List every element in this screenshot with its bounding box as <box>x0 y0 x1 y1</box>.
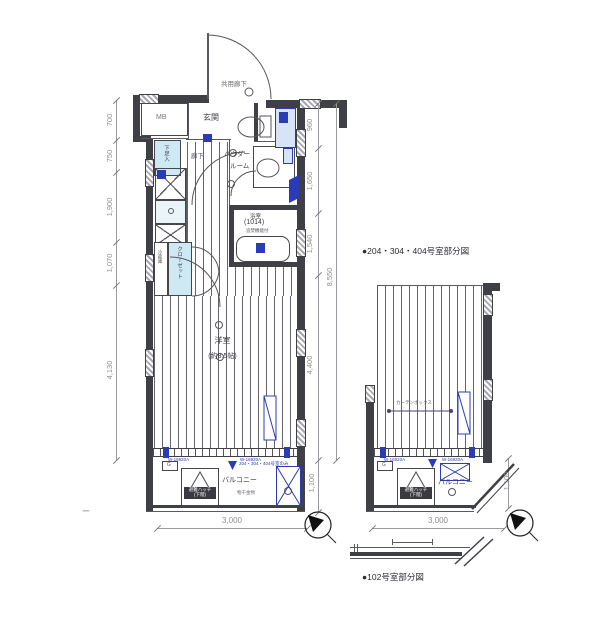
window-note-left: W-16920A <box>384 457 405 462</box>
entry-step-marker <box>203 134 212 142</box>
kitchen-sink <box>155 200 186 224</box>
floor-plan-canvas: MB 玄関 共用廊下 下足入 廊下 冷蔵庫 クローゼット パウダー ルーム 浴室… <box>0 0 613 628</box>
dim-label-3000: 3,000 <box>408 516 468 525</box>
dim-label-3000: 3,000 <box>202 516 262 525</box>
detail-break-slash <box>455 537 484 564</box>
wall-hatch <box>484 295 492 315</box>
escape-hatch-label-line2: (下階) <box>400 492 432 497</box>
wall-hatch <box>146 160 153 186</box>
dim-tick <box>505 505 512 512</box>
chamfer-wall <box>477 468 519 513</box>
detail-bracket-tick <box>392 539 393 545</box>
wall-hatch <box>366 386 374 402</box>
closet-label: クローゼット <box>175 246 183 279</box>
dim-label-4130: 4,130 <box>105 352 115 388</box>
wall-segment <box>146 138 153 465</box>
dim-tick <box>113 457 120 464</box>
partition-line <box>377 285 483 286</box>
dim-label-1070: 1,070 <box>105 245 115 281</box>
partition-line <box>141 138 188 139</box>
detail-wall-band <box>350 552 462 556</box>
gas-outlet-label: G <box>382 462 386 468</box>
wall-hatch <box>297 420 305 446</box>
detail-bracket-tick <box>432 539 433 545</box>
fixture-circle <box>449 489 456 496</box>
wall-segment <box>229 262 297 267</box>
dim-line-right-inner <box>318 103 319 460</box>
mb-label: MB <box>156 114 167 121</box>
dim-label-8550: 8,550 <box>325 259 335 295</box>
gas-outlet-label: G <box>167 462 171 468</box>
north-compass <box>507 510 538 541</box>
washbasin-cabinet <box>283 148 293 164</box>
powder-room-label-1: パウダー <box>224 148 250 158</box>
floor-stripes-right-plan <box>377 286 483 448</box>
window-note-right: W-16920A <box>442 457 463 462</box>
dim-line-bottom <box>157 528 307 529</box>
escape-hatch-label: 避難ハッチ (下階) <box>400 487 432 499</box>
laundry-hook-label: 物干金物 <box>237 490 255 496</box>
dim-tick <box>333 457 340 464</box>
window-note-left: W-16920A <box>168 457 189 462</box>
kitchen-edge-line <box>186 168 187 246</box>
dim-label-1100: 1,100 <box>307 465 317 501</box>
wall-hatch <box>297 130 305 156</box>
dim-line-left <box>116 100 117 460</box>
wall-hatch <box>146 350 153 376</box>
dim-tick <box>304 525 311 532</box>
wall-segment <box>254 103 258 141</box>
laundry-marker-triangle <box>228 461 237 470</box>
entry-door-leaf <box>207 33 209 99</box>
wall-hatch <box>484 380 492 400</box>
toilet-bowl <box>238 117 264 137</box>
balcony-edge-outer <box>146 511 305 512</box>
curtain-box-note: カーテンボックス <box>396 400 432 406</box>
balcony-label: バルコニー <box>438 477 473 487</box>
dim-tick <box>501 525 508 532</box>
right-plan-caption: ●204・304・404号室部分図 <box>362 245 469 257</box>
dim-label-1650: 1,650 <box>305 163 315 199</box>
dim-label-750: 750 <box>105 138 115 174</box>
wall-segment <box>229 205 234 267</box>
room-size-label: (約8.5帖) <box>180 351 265 361</box>
plan-symbols-overlay <box>0 0 613 628</box>
left-margin-dash: ー <box>82 506 90 517</box>
north-compass <box>305 512 336 543</box>
wall-segment <box>133 95 140 142</box>
detail-break-slash <box>464 539 493 566</box>
dim-line-balcony <box>318 460 319 512</box>
balcony-label: バルコニー <box>222 475 257 485</box>
floor-stripes-mid <box>187 267 297 296</box>
dim-label-700: 700 <box>105 102 115 138</box>
laundry-marker-triangle <box>428 459 437 468</box>
bottom-detail-caption: ●102号室部分図 <box>362 571 424 583</box>
wall-segment <box>366 385 374 512</box>
detail-line <box>350 558 462 559</box>
toilet-cabinet-inner <box>279 112 288 123</box>
dim-tick <box>315 509 322 516</box>
balcony-note: 204・304・404号室のみ <box>239 461 289 467</box>
bath-note: 追焚機能付 <box>246 228 269 234</box>
escape-hatch-label-line2: (下階) <box>184 492 216 497</box>
fixture-circle <box>245 88 253 96</box>
detail-bracket <box>392 542 432 543</box>
escape-hatch-label: 避難ハッチ (下階) <box>184 487 216 499</box>
washer-faucet-symbol <box>157 170 166 179</box>
wall-hatch <box>140 95 158 103</box>
balcony-partition <box>276 466 301 506</box>
wall-segment <box>229 205 297 210</box>
window-end-cap <box>284 447 290 458</box>
room-label: 洋室 <box>180 335 265 346</box>
toilet-tank <box>260 116 271 137</box>
fridge-label: 冷蔵庫 <box>157 250 163 264</box>
balcony-edge-outer <box>366 511 474 512</box>
wall-segment <box>339 100 347 128</box>
window-end-cap <box>469 447 475 458</box>
wall-hatch <box>297 330 305 356</box>
dim-label-1540: 1,540 <box>305 226 315 262</box>
partition-line <box>377 285 378 448</box>
window-band <box>153 448 297 457</box>
detail-break-tick <box>357 544 358 552</box>
bath-size-label: (1014) <box>244 219 264 226</box>
shoe-box-label: 下足入 <box>162 145 170 162</box>
wall-hatch <box>146 255 153 281</box>
detail-break-tick <box>354 544 355 552</box>
wall-segment <box>483 283 500 291</box>
floor-stripes-room <box>154 296 297 448</box>
detail-line <box>350 547 470 548</box>
dim-line-right-outer <box>336 103 337 460</box>
dim-label-1900: 1,900 <box>105 189 115 225</box>
corridor-label: 廊下 <box>191 150 204 160</box>
dim-label-4400: 4,400 <box>305 347 315 383</box>
entry-door-arc <box>207 35 271 99</box>
dim-label-960: 960 <box>305 107 315 143</box>
bathtub-drain-symbol <box>256 243 265 253</box>
common-corridor-label: 共用廊下 <box>221 78 247 88</box>
powder-room-label-2: ルーム <box>230 160 249 170</box>
wall-hatch <box>297 230 305 256</box>
entrance-label: 玄関 <box>203 112 219 123</box>
dim-label-1100: 1,100 <box>502 463 512 499</box>
floor-stripes-corridor <box>187 142 229 267</box>
partition-line <box>188 103 189 139</box>
window-band <box>374 448 483 457</box>
dim-line-bottom <box>372 528 504 529</box>
